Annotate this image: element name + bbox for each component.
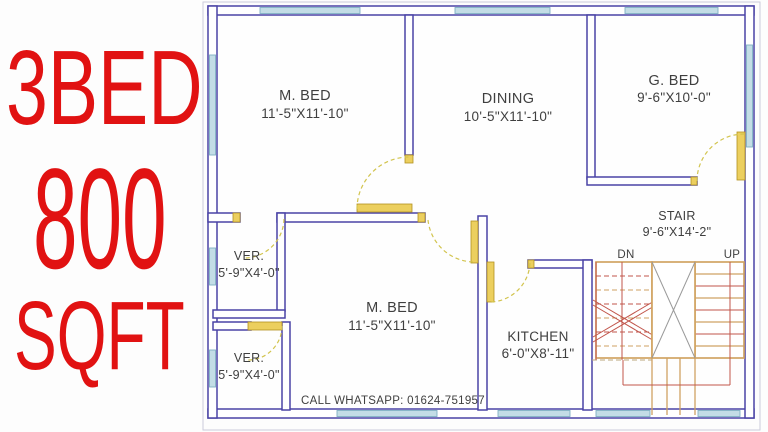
window-bottom-mbed [337, 411, 437, 417]
window-left-mbed [210, 55, 216, 155]
door-leaf-mbed-bottom [471, 221, 478, 263]
label-ver2-name: VER. [234, 351, 264, 365]
wall-mid [277, 213, 425, 222]
label-mbed-bottom-name: M. BED [366, 300, 418, 316]
label-gbed-dims: 9'-6"X10'-0" [637, 90, 711, 105]
window-top-gbed [625, 8, 718, 14]
door-leaf-gbed [737, 132, 745, 180]
label-stair-name: STAIR [658, 209, 695, 223]
label-ver1-name: VER. [234, 249, 264, 263]
wall-dining-gbed [587, 15, 595, 179]
window-bottom-kitchen [498, 411, 570, 417]
wall-mbed-kitchen [478, 216, 487, 410]
window-top-mbed [260, 8, 360, 14]
label-mbed-bottom-dims: 11'-5"X11'-10" [348, 318, 436, 333]
label-stair-dims: 9'-6"X14'-2" [643, 225, 712, 239]
wall-ver2-top [213, 322, 251, 330]
door-jamb-mbed-top [405, 155, 413, 163]
label-mbed-top-dims: 11'-5"X11'-10" [261, 106, 349, 121]
label-dining-name: DINING [482, 91, 535, 107]
wall-kitchen-stair [583, 260, 592, 410]
window-bottom-stair-right [698, 411, 740, 417]
window-left-ver1 [210, 248, 216, 285]
wall-ver2-right [282, 322, 290, 410]
wall-mbed-dining [405, 15, 413, 155]
window-bottom-stair-left [596, 411, 650, 417]
door-leaf-kitchen [487, 262, 494, 302]
thumbnail-canvas: 3BED 800 SQFT [0, 0, 768, 432]
label-kitchen-name: KITCHEN [507, 329, 568, 344]
door-jamb-ver1 [233, 213, 240, 222]
wall-ver1-right [277, 213, 285, 311]
label-stair-dn: DN [617, 249, 634, 261]
label-gbed-name: G. BED [649, 73, 700, 89]
label-stair-up: UP [724, 249, 741, 261]
door-leaf-ver2 [248, 322, 282, 330]
door-leaf-mbed-top [357, 204, 412, 212]
label-ver1-dims: 5'-9"X4'-0" [218, 266, 279, 280]
door-jamb-gbed [691, 177, 697, 185]
window-left-ver2 [210, 350, 216, 387]
door-jamb-mid-wall [418, 213, 425, 222]
label-ver2-dims: 5'-9"X4'-0" [218, 368, 279, 382]
window-right-gbed [747, 45, 753, 147]
window-top-dining [455, 8, 550, 14]
door-jamb-kitchen [528, 260, 534, 268]
wall-ver1-bottom [213, 310, 285, 318]
contact-whatsapp-text: CALL WHATSAPP: 01624-751957 [301, 395, 485, 407]
label-mbed-top-name: M. BED [279, 88, 331, 104]
floor-plan: M. BED 11'-5"X11'-10" DINING 10'-5"X11'-… [0, 0, 768, 432]
label-kitchen-dims: 6'-0"X8'-11" [502, 346, 575, 361]
wall-gbed-bottom [587, 177, 697, 185]
label-dining-dims: 10'-5"X11'-10" [464, 109, 553, 124]
